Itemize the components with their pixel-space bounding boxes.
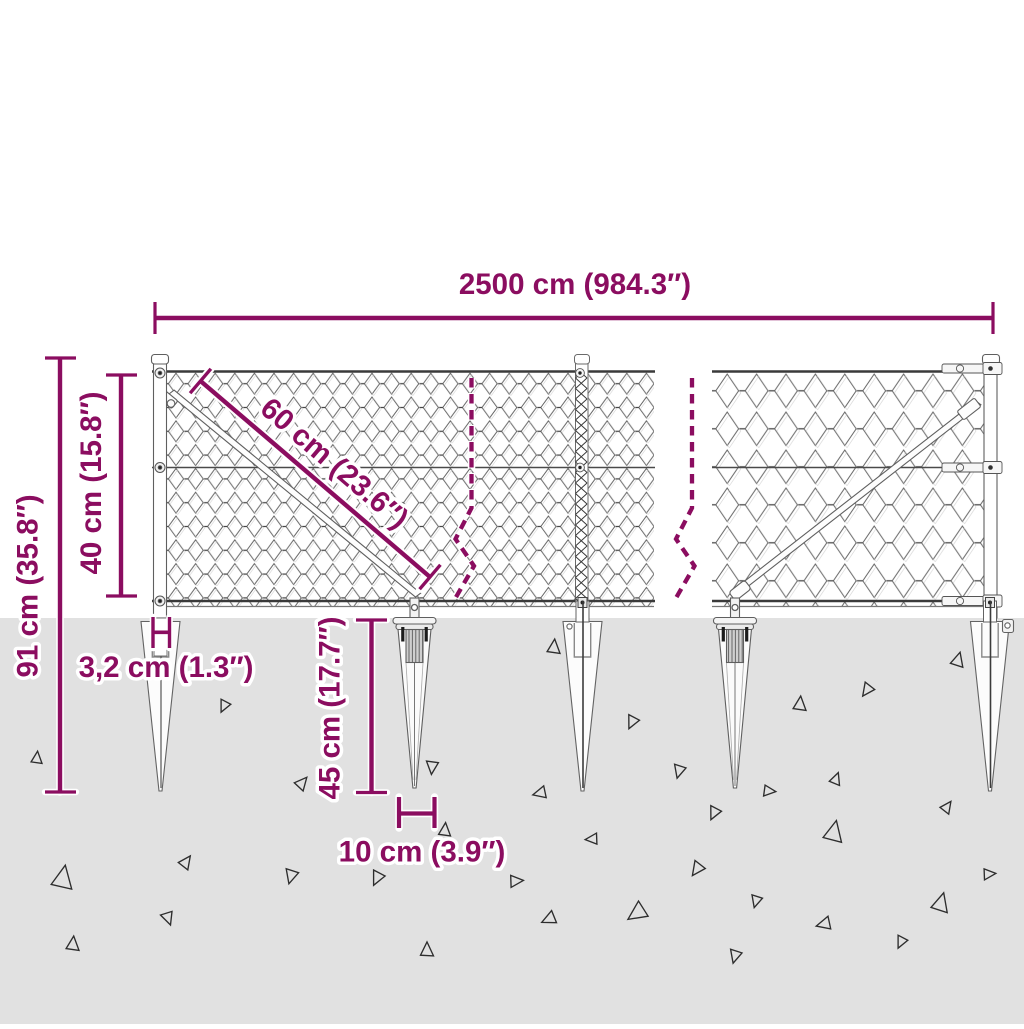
svg-text:45 cm (17.7″): 45 cm (17.7″) [314,616,347,799]
svg-text:3,2 cm (1.3″): 3,2 cm (1.3″) [79,651,254,684]
svg-text:10 cm (3.9″): 10 cm (3.9″) [339,836,506,869]
svg-text:40 cm (15.8″): 40 cm (15.8″) [75,391,108,574]
svg-text:91 cm (35.8″): 91 cm (35.8″) [12,494,45,677]
svg-text:2500 cm (984.3″): 2500 cm (984.3″) [459,268,691,301]
